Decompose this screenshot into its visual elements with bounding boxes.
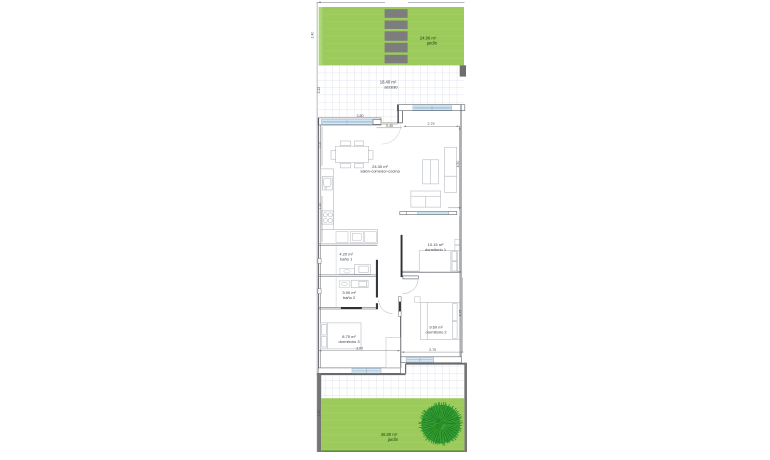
svg-text:1.00: 1.00	[318, 142, 322, 149]
svg-text:jardín: jardín	[387, 437, 399, 442]
svg-text:2.40: 2.40	[311, 32, 315, 39]
svg-text:baño 1: baño 1	[340, 256, 353, 261]
svg-text:dormitorio 2: dormitorio 2	[426, 330, 448, 335]
svg-text:jardín: jardín	[426, 41, 438, 46]
svg-text:3.15: 3.15	[459, 310, 463, 317]
svg-text:baño 2: baño 2	[343, 295, 356, 300]
svg-text:2.70: 2.70	[429, 348, 436, 352]
svg-text:acceso: acceso	[384, 85, 398, 90]
svg-text:1.20: 1.20	[318, 203, 322, 210]
svg-text:salón-comedor-cocina: salón-comedor-cocina	[360, 169, 400, 174]
svg-text:3.80: 3.80	[357, 114, 364, 118]
svg-text:2.79: 2.79	[428, 122, 435, 126]
svg-text:3.00: 3.00	[356, 347, 363, 351]
svg-text:dormitorio 1: dormitorio 1	[425, 247, 447, 252]
svg-text:dormitorio 3: dormitorio 3	[338, 339, 360, 344]
svg-text:2.22: 2.22	[317, 87, 321, 94]
svg-text:0.40: 0.40	[386, 124, 393, 128]
svg-text:1.60: 1.60	[317, 410, 321, 417]
svg-text:4.50: 4.50	[456, 161, 460, 168]
